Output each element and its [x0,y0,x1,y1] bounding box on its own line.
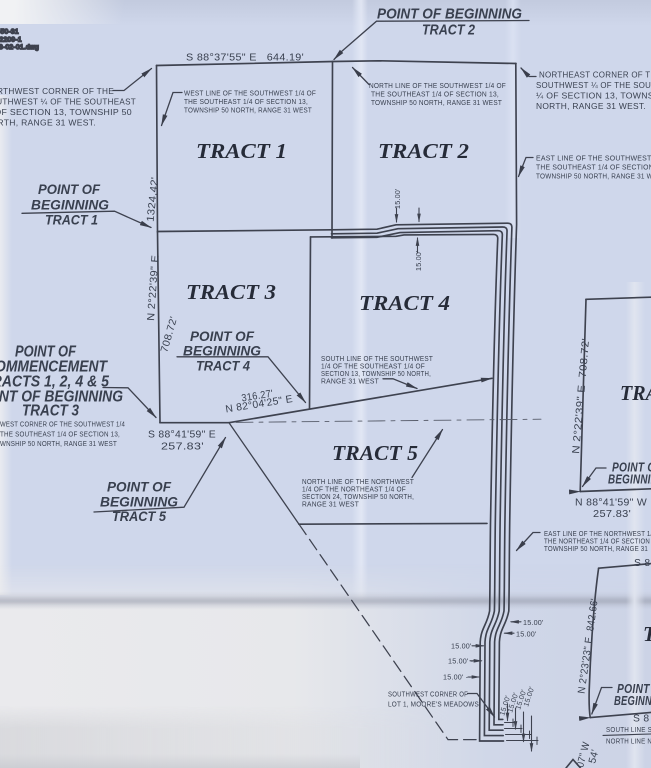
svg-text:¼ OF SECTION 13, TOWNSHIP 50: ¼ OF SECTION 13, TOWNSHIP 50 [0,107,132,117]
svg-text:N 2°23'23" E 842.66': N 2°23'23" E 842.66' [577,598,601,695]
svg-text:N 88°41'59" W: N 88°41'59" W [575,498,647,509]
svg-text:T: T [643,622,651,646]
svg-text:TRACT 1: TRACT 1 [196,139,287,163]
svg-text:S 88°41'59" E: S 88°41'59" E [148,430,216,441]
svg-text:SOUTH LINE S: SOUTH LINE S [606,725,651,734]
svg-text:TRACT 5: TRACT 5 [332,441,418,465]
svg-text:15.00': 15.00' [516,630,537,639]
svg-text:8-02-01.dwg: 8-02-01.dwg [0,44,39,51]
svg-text:¼ OF SECTION 13, TOWNSHIP 50: ¼ OF SECTION 13, TOWNSHIP 50 [536,91,651,101]
svg-text:15.00': 15.00' [414,250,423,271]
svg-text:TOWNSHIP 50 NORTH, RANGE 31: TOWNSHIP 50 NORTH, RANGE 31 [544,544,648,553]
svg-text:TRACT 3: TRACT 3 [22,403,79,420]
svg-text:15.00': 15.00' [451,642,472,651]
svg-text:TOWNSHIP 50 NORTH, RANGE 31 WE: TOWNSHIP 50 NORTH, RANGE 31 WEST [371,98,502,107]
svg-text:POINT OF BEGINNING: POINT OF BEGINNING [377,6,522,23]
svg-text:BEGINN: BEGINN [614,693,651,708]
svg-text:S 8: S 8 [634,558,650,569]
svg-text:S 88°37'55" E 644.19': S 88°37'55" E 644.19' [186,53,304,64]
svg-text:TOWNSHIP 50 NORTH, RANGE 31 WE: TOWNSHIP 50 NORTH, RANGE 31 WEST [184,106,312,115]
svg-text:-2209-1: -2209-1 [0,37,22,44]
svg-text:TOWNSHIP 50 NORTH, RANGE 31 WE: TOWNSHIP 50 NORTH, RANGE 31 WEST [536,172,651,181]
svg-text:S 8: S 8 [633,714,649,725]
svg-text:WNSHIP 50 NORTH, RANGE 31 WEST: WNSHIP 50 NORTH, RANGE 31 WEST [0,439,117,448]
svg-text:708.72': 708.72' [159,315,180,354]
svg-text:TRACT 2: TRACT 2 [422,22,476,39]
svg-text:RANGE 31 WEST: RANGE 31 WEST [321,377,379,386]
svg-text:15.00' --: 15.00' -- [443,673,471,682]
svg-text:NORTH, RANGE 31 WEST.: NORTH, RANGE 31 WEST. [536,101,646,111]
svg-text:TRACT 5: TRACT 5 [112,509,167,525]
svg-text:TRACT 4: TRACT 4 [359,291,450,315]
svg-text:257.83': 257.83' [161,442,204,453]
svg-text:15.00': 15.00' [393,188,402,209]
svg-text:NORTH LINE N: NORTH LINE N [606,737,651,746]
svg-text:TRACT 4: TRACT 4 [196,359,250,375]
svg-text:54': 54' [587,748,601,764]
svg-text:NORTHEAST CORNER OF THE: NORTHEAST CORNER OF THE [539,70,651,80]
svg-text:NORTHWEST CORNER OF THE: NORTHWEST CORNER OF THE [0,86,114,96]
svg-text:RANGE 31 WEST: RANGE 31 WEST [302,500,359,509]
svg-text:15.00' -: 15.00' - [448,657,474,666]
svg-text:TRACT 1: TRACT 1 [45,213,98,229]
svg-text:BEGINNIN: BEGINNIN [608,472,651,487]
svg-text:-50-31: -50-31 [0,29,19,36]
svg-text:NORTH, RANGE 31 WEST.: NORTH, RANGE 31 WEST. [0,118,96,128]
svg-text:1324.42': 1324.42' [146,176,162,222]
svg-text:EAST LINE OF THE SOUTHWEST 1/4: EAST LINE OF THE SOUTHWEST 1/4 [536,154,651,163]
svg-text:TRACT 3: TRACT 3 [186,280,276,304]
svg-text:LOT 1, MOORE'S MEADOWS: LOT 1, MOORE'S MEADOWS [388,700,479,709]
svg-text:BEGINNING: BEGINNING [183,344,261,360]
svg-text:SOUTHWEST ¼ OF THE SOUTHWEST: SOUTHWEST ¼ OF THE SOUTHWEST [536,80,651,90]
svg-text:15.00': 15.00' [521,685,536,708]
svg-text:THE SOUTHEAST 1/4 OF SECTION 1: THE SOUTHEAST 1/4 OF SECTION 13, [0,430,120,439]
svg-text:WEST CORNER OF THE SOUTHWEST 1: WEST CORNER OF THE SOUTHWEST 1/4 [0,420,125,429]
svg-text:SOUTHWEST CORNER OF: SOUTHWEST CORNER OF [388,690,468,699]
svg-text:15.00': 15.00' [523,618,544,627]
svg-text:TRACT 2: TRACT 2 [378,139,470,163]
svg-text:THE SOUTHEAST 1/4 OF SECTION 1: THE SOUTHEAST 1/4 OF SECTION 13, [536,163,651,172]
svg-text:POINT OF: POINT OF [107,480,171,496]
svg-text:BEGINNING: BEGINNING [31,198,109,214]
svg-text:POINT OF: POINT OF [38,182,100,198]
svg-text:257.83': 257.83' [593,509,631,520]
svg-text:N 2°22'39" E 708.72': N 2°22'39" E 708.72' [571,338,592,455]
svg-text:SOUTHWEST ¼ OF THE SOUTHEAST: SOUTHWEST ¼ OF THE SOUTHEAST [0,97,136,107]
svg-text:TRA: TRA [620,381,651,405]
